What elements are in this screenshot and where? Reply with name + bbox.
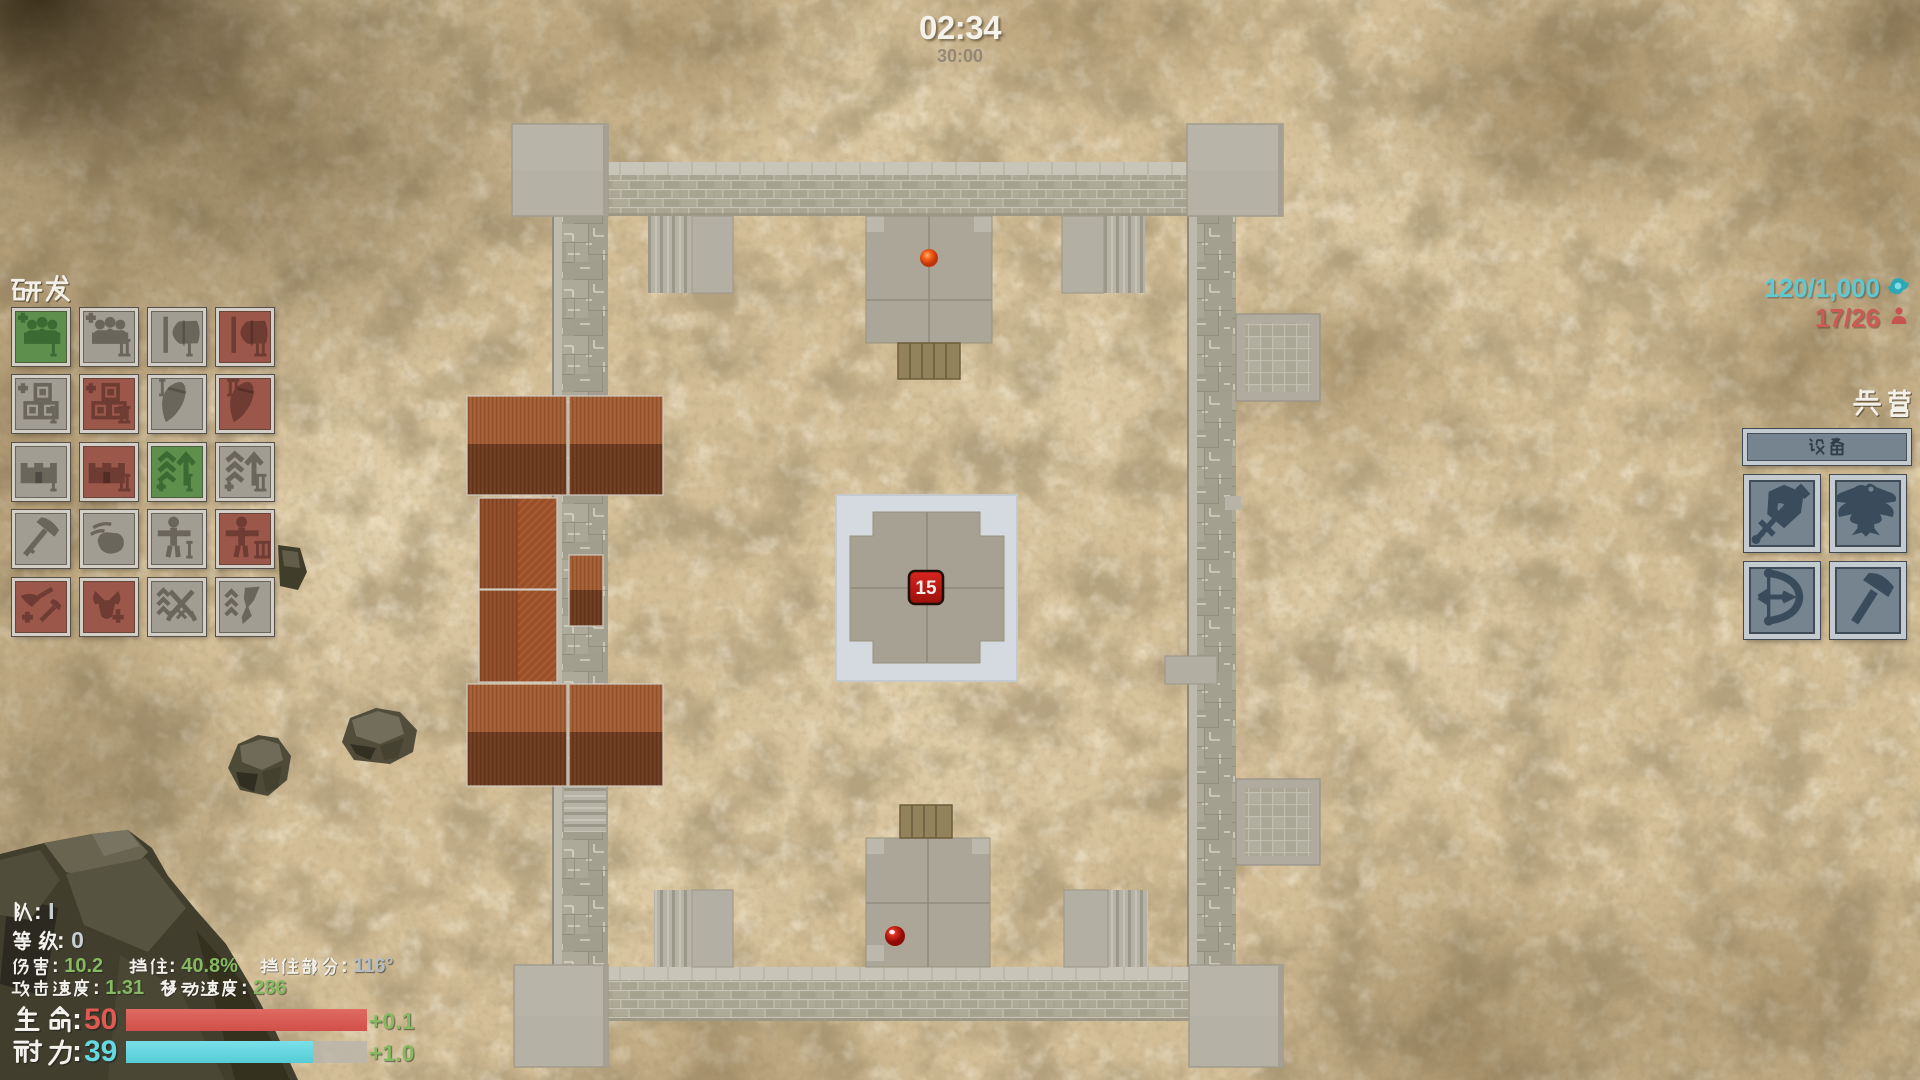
svg-text:15: 15 [915, 578, 937, 599]
